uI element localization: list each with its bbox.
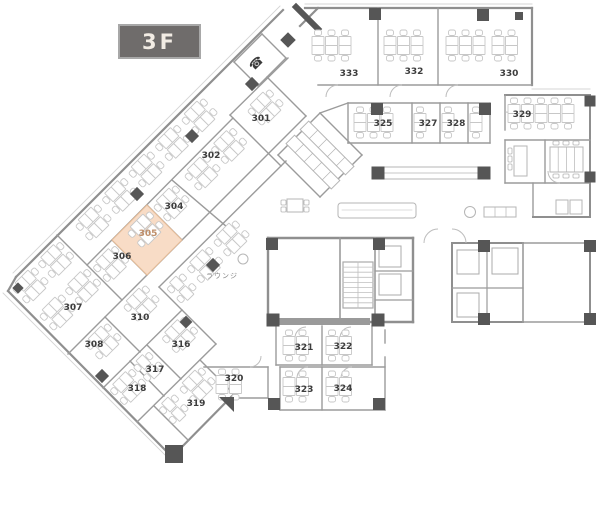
lounge-label: ラウンジ [206,272,238,280]
room-label-305: 305 [139,229,158,239]
room-label-327: 327 [419,119,438,129]
room-label-307: 307 [64,303,83,313]
room-label-332: 332 [405,67,424,77]
room-label-310: 310 [131,313,150,323]
room-label-323: 323 [295,385,314,395]
desks-layer [9,30,574,441]
room-label-330: 330 [500,69,519,79]
room-label-308: 308 [85,340,104,350]
room-label-322: 322 [334,342,353,352]
room-label-328: 328 [447,119,466,129]
room-label-333: 333 [340,69,359,79]
floor-plan-page: 3013023043053063073083103163173183193203… [0,0,600,507]
floor-badge-label: 3F [142,30,177,54]
room-label-306: 306 [113,252,132,262]
floor-badge: 3F [118,24,201,59]
room-label-316: 316 [172,340,191,350]
phone-icon: ☎ [246,53,267,74]
room-label-321: 321 [295,343,314,353]
room-label-329: 329 [513,110,532,120]
room-label-324: 324 [334,384,353,394]
room-label-320: 320 [225,374,244,384]
room-label-317: 317 [146,365,165,375]
room-label-319: 319 [187,399,206,409]
room-label-304: 304 [165,202,184,212]
room-label-301: 301 [252,114,271,124]
floor-plan-svg: 3013023043053063073083103163173183193203… [0,0,600,507]
room-label-302: 302 [202,151,221,161]
room-label-318: 318 [128,384,147,394]
room-label-325: 325 [374,119,393,129]
